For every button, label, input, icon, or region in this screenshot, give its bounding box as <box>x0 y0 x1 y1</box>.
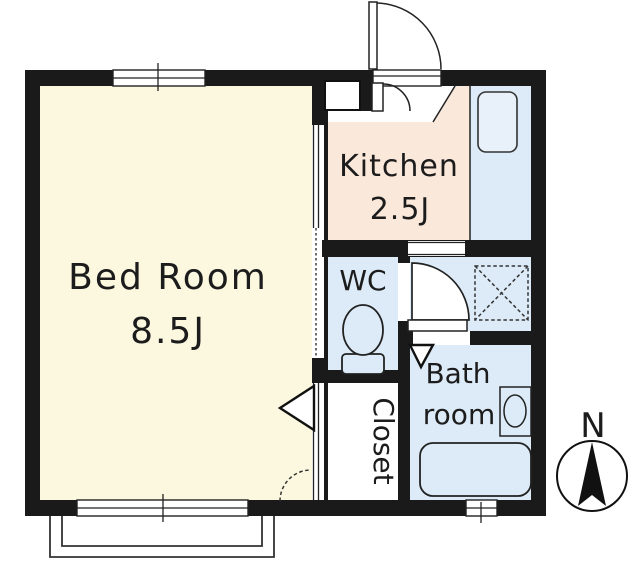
wall-top <box>25 70 546 86</box>
kitchen-sink <box>478 92 517 152</box>
floorplan-page: N Bed Room 8.5J Kitchen 2.5J WC Bath roo… <box>0 0 640 570</box>
window-bathroom <box>466 500 497 523</box>
kitchen-label: Kitchen <box>339 149 459 184</box>
wall-genkan-stub <box>360 85 372 111</box>
wc-door-leaf <box>408 320 467 331</box>
shoe-cabinet <box>325 81 360 110</box>
north-needle-icon <box>578 442 606 506</box>
bathroom-label-line1: Bath <box>425 357 490 390</box>
toilet <box>342 305 384 374</box>
kitchen-doorway <box>408 241 465 256</box>
compass: N <box>557 406 627 511</box>
bedroom-label: Bed Room <box>68 257 268 298</box>
bathroom-label-line2: room <box>423 398 495 431</box>
compass-north-label: N <box>580 406 605 446</box>
bedroom-area-label: 8.5J <box>130 311 206 352</box>
wall-left <box>25 70 40 516</box>
wc-label: WC <box>339 264 386 297</box>
bathroom-doorway <box>413 331 470 345</box>
kitchen-area-label: 2.5J <box>370 192 431 227</box>
entrance-door <box>369 2 441 69</box>
wall-bedroom-divider-edge <box>324 125 328 500</box>
wc-doorway <box>398 263 410 321</box>
floorplan-drawing: N Bed Room 8.5J Kitchen 2.5J WC Bath roo… <box>0 0 640 570</box>
balcony <box>50 516 274 557</box>
wall-right <box>531 70 546 516</box>
closet-label: Closet <box>367 397 400 484</box>
